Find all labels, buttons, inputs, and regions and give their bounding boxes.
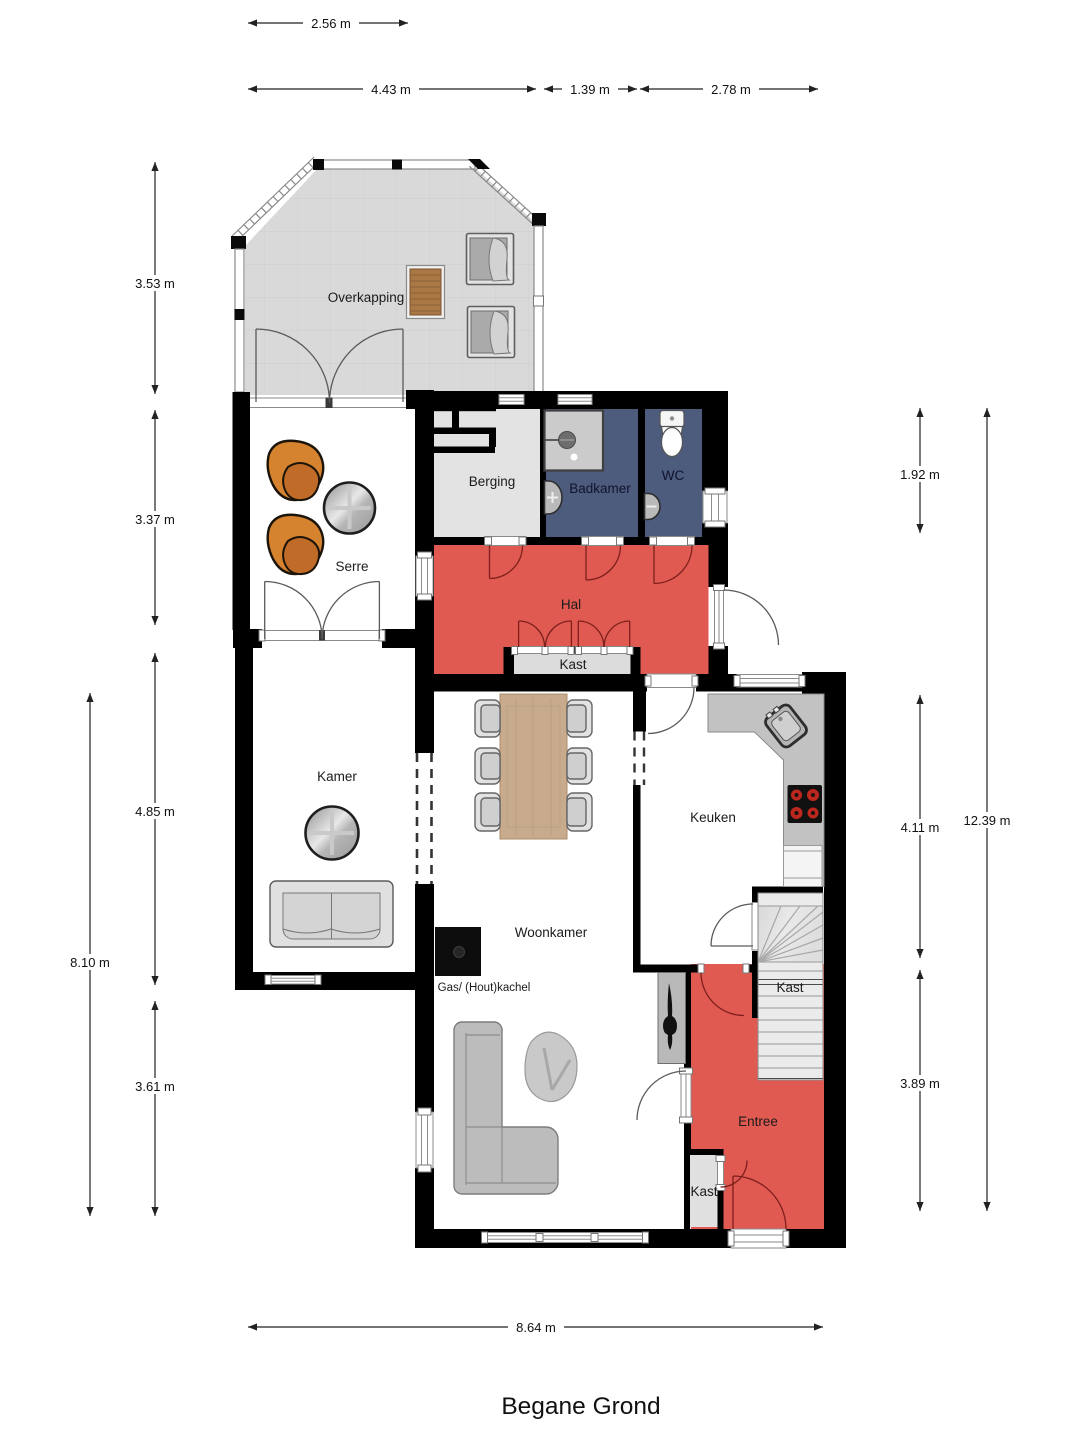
- svg-text:WC: WC: [662, 468, 685, 483]
- svg-text:3.89 m: 3.89 m: [900, 1076, 940, 1091]
- svg-text:4.85 m: 4.85 m: [135, 804, 175, 819]
- svg-text:Hal: Hal: [561, 597, 581, 612]
- svg-text:Kast: Kast: [690, 1184, 717, 1199]
- svg-text:2.78 m: 2.78 m: [711, 82, 751, 97]
- svg-text:3.53 m: 3.53 m: [135, 276, 175, 291]
- svg-text:Kast: Kast: [559, 657, 586, 672]
- svg-text:Gas/ (Hout)kachel: Gas/ (Hout)kachel: [438, 982, 531, 994]
- svg-text:Begane Grond: Begane Grond: [501, 1393, 660, 1420]
- svg-text:1.92 m: 1.92 m: [900, 467, 940, 482]
- svg-text:Woonkamer: Woonkamer: [515, 925, 588, 940]
- svg-text:Keuken: Keuken: [690, 810, 736, 825]
- svg-text:Kast: Kast: [776, 980, 803, 995]
- svg-text:8.64 m: 8.64 m: [516, 1320, 556, 1335]
- svg-text:Entree: Entree: [738, 1114, 778, 1129]
- svg-text:3.37 m: 3.37 m: [135, 512, 175, 527]
- svg-text:4.43 m: 4.43 m: [371, 82, 411, 97]
- svg-text:Serre: Serre: [335, 559, 368, 574]
- svg-text:1.39 m: 1.39 m: [570, 82, 610, 97]
- svg-text:Badkamer: Badkamer: [569, 481, 631, 496]
- svg-text:Kamer: Kamer: [317, 769, 357, 784]
- svg-text:Berging: Berging: [469, 474, 516, 489]
- svg-text:2.56 m: 2.56 m: [311, 16, 351, 31]
- svg-text:4.11 m: 4.11 m: [901, 820, 940, 835]
- svg-text:3.61 m: 3.61 m: [135, 1079, 175, 1094]
- svg-text:Overkapping: Overkapping: [328, 290, 405, 305]
- svg-text:8.10 m: 8.10 m: [70, 955, 110, 970]
- svg-text:12.39 m: 12.39 m: [964, 813, 1011, 828]
